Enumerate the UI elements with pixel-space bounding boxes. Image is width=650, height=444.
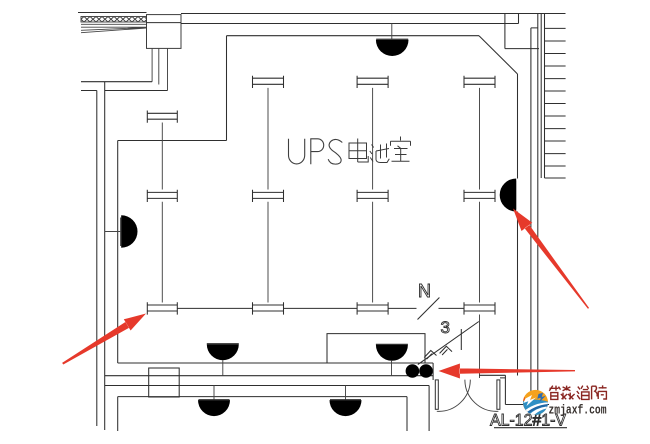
- svg-text:zmjaxf.com: zmjaxf.com: [549, 403, 607, 418]
- svg-text:N: N: [418, 281, 431, 301]
- svg-text:3: 3: [441, 318, 450, 337]
